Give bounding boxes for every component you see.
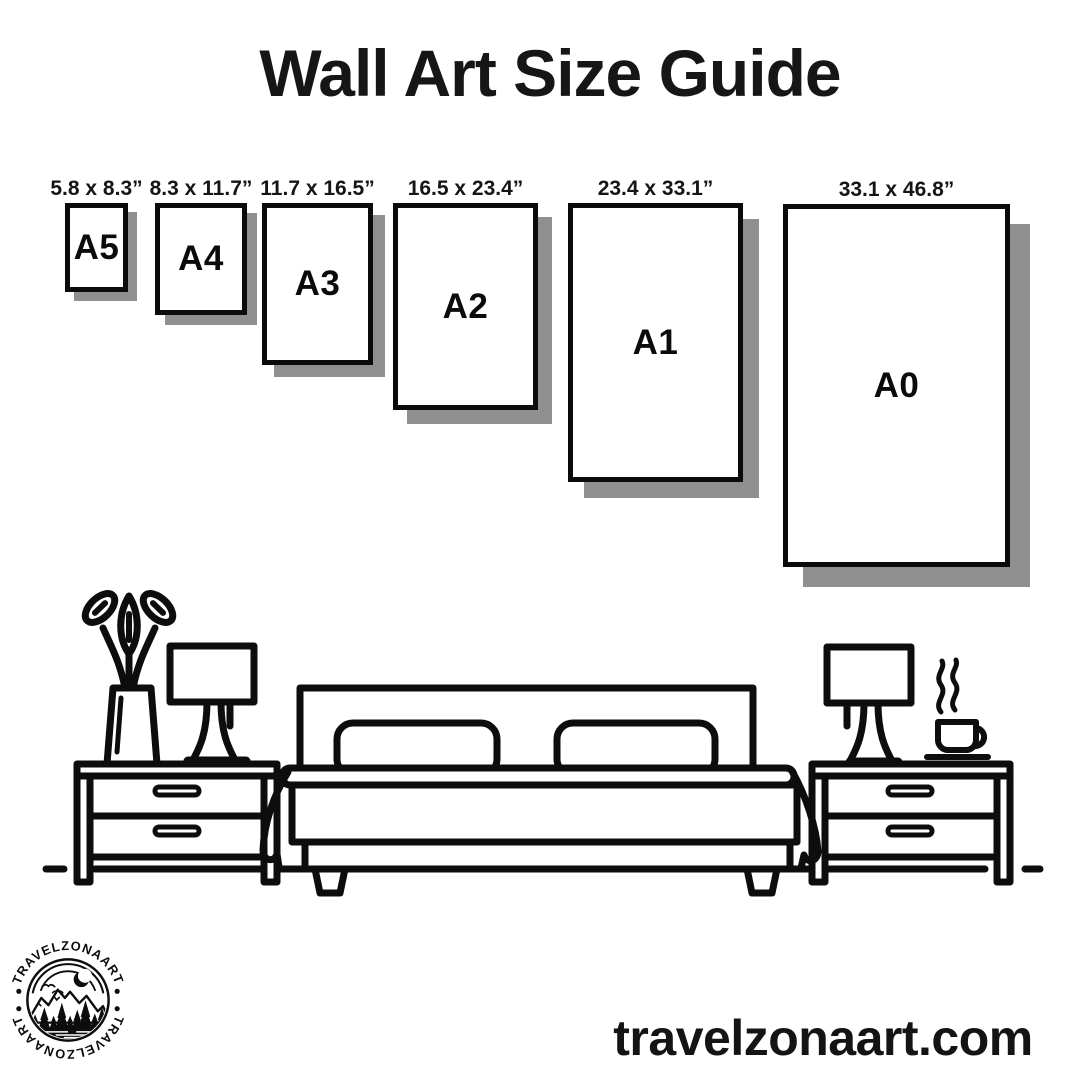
- size-code-label-a1: A1: [633, 323, 679, 363]
- size-frame-a3: 11.7 x 16.5” A3: [262, 203, 373, 365]
- size-frame-a2: 16.5 x 23.4” A2: [393, 203, 538, 410]
- size-dims-label-a0: 33.1 x 46.8”: [839, 178, 955, 202]
- size-code-label-a0: A0: [874, 366, 920, 406]
- size-dims-label-a5: 5.8 x 8.3”: [50, 177, 142, 201]
- size-dims-label-a2: 16.5 x 23.4”: [408, 177, 524, 201]
- table-lamp-left-icon: [170, 646, 254, 761]
- page-title: Wall Art Size Guide: [10, 40, 1080, 106]
- size-frame-a1: 23.4 x 33.1” A1: [568, 203, 743, 482]
- size-frame-a0: 33.1 x 46.8” A0: [783, 204, 1010, 567]
- double-bed-icon: [263, 688, 818, 893]
- size-code-label-a5: A5: [74, 228, 120, 268]
- bird-icon: [42, 985, 54, 987]
- bedroom-illustration: [0, 580, 1080, 910]
- nightstand-left-icon: [77, 764, 277, 882]
- nightstand-right-icon: [812, 764, 1010, 882]
- size-frame-a5: 5.8 x 8.3” A5: [65, 203, 128, 292]
- logo-text-top-path: TRAVELZONAART: [9, 938, 127, 986]
- potted-plant-icon: [80, 588, 178, 764]
- size-code-label-a3: A3: [295, 264, 341, 304]
- website-text: travelzonaart.com: [563, 1009, 1080, 1067]
- coffee-cup-icon: [927, 660, 988, 757]
- size-dims-label-a1: 23.4 x 33.1”: [598, 177, 714, 201]
- brand-logo: TRAVELZONAART TRAVELZONAART: [0, 928, 140, 1072]
- size-code-label-a4: A4: [178, 239, 224, 279]
- size-code-label-a2: A2: [443, 287, 489, 327]
- table-lamp-right-icon: [827, 647, 911, 762]
- size-guide-infographic: Wall Art Size Guide 5.8 x 8.3” A5 8.3 x …: [0, 0, 1080, 1080]
- mountains-icon: [27, 990, 110, 1023]
- size-dims-label-a3: 11.7 x 16.5”: [260, 177, 374, 201]
- size-dims-label-a4: 8.3 x 11.7”: [150, 177, 253, 201]
- logo-text-top: TRAVELZONAART: [9, 938, 127, 986]
- size-frame-a4: 8.3 x 11.7” A4: [155, 203, 247, 315]
